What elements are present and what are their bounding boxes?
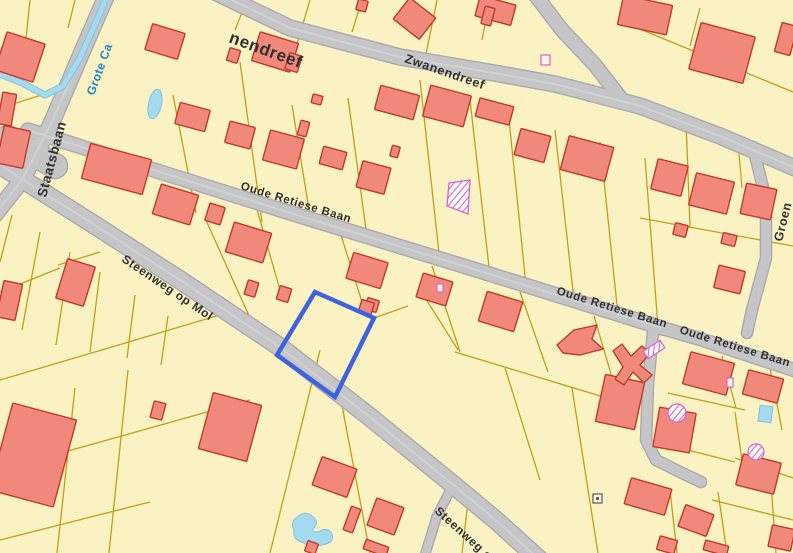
hatched-round-annex (748, 444, 764, 460)
map-canvas[interactable]: nendreefZwanendreefOude Retiese BaanOude… (0, 0, 793, 553)
small-structure (541, 55, 550, 65)
building (651, 159, 689, 197)
swimming-pool (758, 405, 773, 423)
utility-marker-dot (596, 497, 599, 500)
building (768, 525, 793, 551)
hatched-round-annex (668, 404, 686, 422)
building (311, 94, 323, 105)
building (356, 0, 369, 12)
building (740, 183, 777, 220)
building (721, 232, 737, 246)
small-structure (727, 378, 733, 387)
map-viewport[interactable]: nendreefZwanendreefOude Retiese BaanOude… (0, 0, 793, 553)
small-structure (437, 284, 443, 292)
building (673, 223, 689, 238)
